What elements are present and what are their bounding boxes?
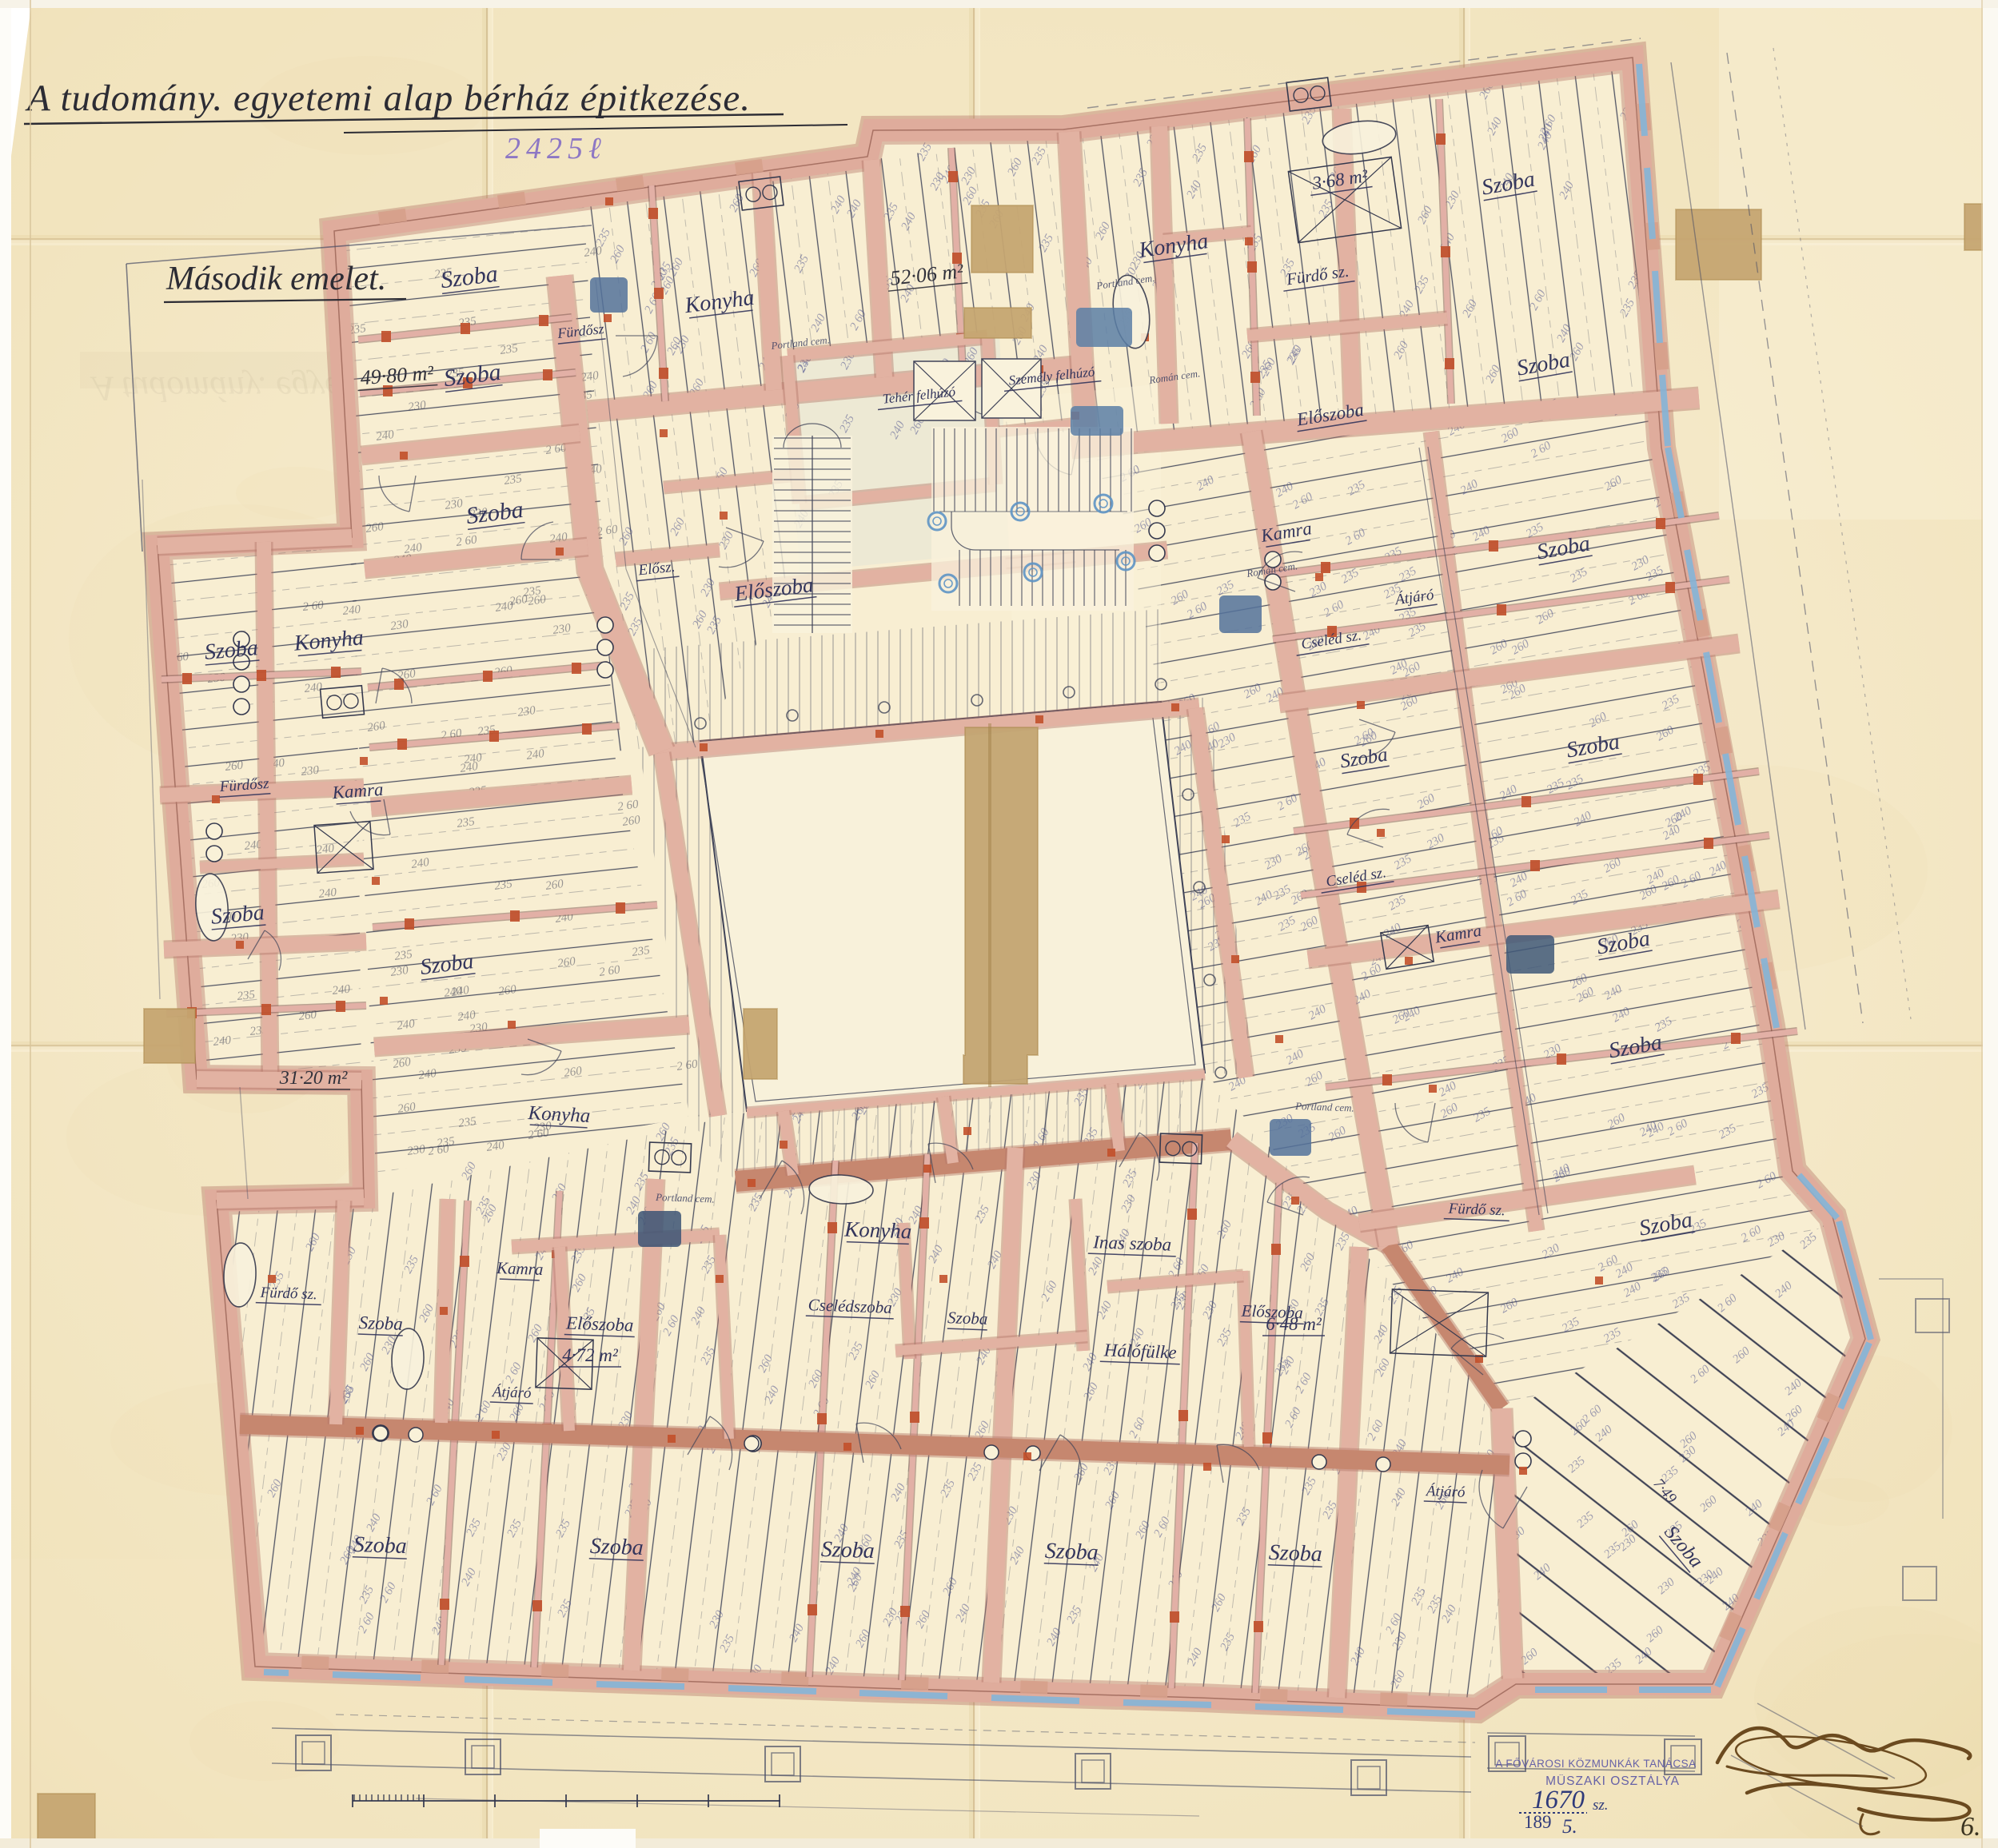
- svg-text:235: 235: [631, 944, 651, 959]
- svg-text:Szoba: Szoba: [820, 1537, 875, 1563]
- svg-text:Cselédszoba: Cselédszoba: [808, 1295, 892, 1317]
- svg-text:235: 235: [493, 878, 513, 893]
- svg-text:Szoba: Szoba: [1044, 1539, 1099, 1565]
- svg-text:235: 235: [436, 1135, 456, 1150]
- svg-text:240: 240: [525, 747, 545, 763]
- svg-text:2 60: 2 60: [302, 599, 325, 614]
- svg-text:Szoba: Szoba: [358, 1312, 403, 1334]
- svg-text:230: 230: [406, 1143, 426, 1158]
- svg-text:Fürdősz: Fürdősz: [218, 775, 269, 795]
- svg-text:189: 189: [1524, 1812, 1552, 1832]
- svg-text:240: 240: [396, 1018, 416, 1033]
- svg-text:Szoba: Szoba: [947, 1308, 988, 1328]
- svg-text:240: 240: [410, 856, 430, 871]
- svg-text:sz.: sz.: [1593, 1797, 1609, 1814]
- svg-text:260: 260: [397, 1101, 417, 1116]
- svg-text:260: 260: [366, 719, 386, 735]
- svg-text:240: 240: [459, 760, 479, 775]
- svg-text:240: 240: [417, 1067, 437, 1082]
- svg-text:240: 240: [332, 983, 352, 998]
- svg-text:230: 230: [407, 399, 427, 414]
- svg-text:260: 260: [544, 878, 564, 893]
- svg-text:Konyha: Konyha: [843, 1217, 912, 1244]
- svg-text:235: 235: [457, 1115, 477, 1130]
- svg-text:31·20 m²: 31·20 m²: [279, 1068, 348, 1089]
- svg-text:260: 260: [563, 1065, 583, 1080]
- svg-text:260: 260: [508, 593, 528, 608]
- svg-text:Fürdő sz.: Fürdő sz.: [1447, 1201, 1505, 1220]
- svg-text:260: 260: [497, 983, 517, 998]
- svg-text:Fürdő sz.: Fürdő sz.: [259, 1284, 317, 1304]
- svg-text:Kamra: Kamra: [331, 779, 384, 803]
- svg-text:Átjáró: Átjáró: [491, 1383, 532, 1402]
- svg-text:230: 230: [389, 618, 409, 633]
- svg-text:235: 235: [503, 472, 523, 488]
- svg-text:A FŐVÁROSI KÖZMUNKÁK TANÁCSA: A FŐVÁROSI KÖZMUNKÁK TANÁCSA: [1495, 1758, 1696, 1770]
- svg-text:4·72 m²: 4·72 m²: [562, 1345, 619, 1365]
- svg-text:Kamra: Kamra: [496, 1258, 544, 1279]
- svg-text:Szoba: Szoba: [1268, 1540, 1322, 1567]
- svg-text:260: 260: [621, 814, 641, 829]
- svg-text:235: 235: [456, 815, 476, 830]
- svg-text:230: 230: [516, 704, 536, 719]
- svg-text:240: 240: [375, 428, 395, 444]
- svg-text:230: 230: [552, 622, 572, 637]
- svg-text:240: 240: [342, 603, 362, 618]
- svg-text:Szoba: Szoba: [353, 1532, 407, 1559]
- svg-text:230: 230: [444, 497, 464, 512]
- svg-text:260: 260: [527, 593, 547, 608]
- svg-text:235: 235: [237, 989, 257, 1003]
- svg-text:240: 240: [485, 1139, 505, 1154]
- svg-text:260: 260: [556, 955, 576, 970]
- svg-text:235: 235: [393, 948, 413, 963]
- svg-text:Második emelet.: Második emelet.: [166, 261, 386, 297]
- svg-text:1670: 1670: [1532, 1786, 1585, 1814]
- svg-text:260: 260: [225, 759, 245, 774]
- svg-text:230: 230: [301, 764, 321, 779]
- svg-text:6·48 m²: 6·48 m²: [1266, 1314, 1322, 1334]
- svg-text:2425ℓ: 2425ℓ: [505, 132, 607, 165]
- svg-text:Hálófülke: Hálófülke: [1103, 1340, 1178, 1362]
- svg-text:Portland cem.: Portland cem.: [655, 1191, 715, 1205]
- svg-text:230: 230: [389, 964, 409, 979]
- svg-text:5.: 5.: [1562, 1816, 1577, 1838]
- svg-text:260: 260: [392, 1056, 412, 1071]
- svg-text:240: 240: [443, 985, 463, 1000]
- svg-text:235: 235: [499, 342, 519, 357]
- svg-text:Inas szoba: Inas szoba: [1092, 1232, 1172, 1254]
- svg-text:240: 240: [457, 1009, 477, 1024]
- svg-text:240: 240: [318, 886, 338, 901]
- svg-text:240: 240: [213, 1034, 233, 1049]
- svg-text:A tudomány. egyetemi alap bérh: A tudomány. egyetemi alap bérház épitkez…: [25, 78, 751, 119]
- svg-text:Átjáró: Átjáró: [1425, 1482, 1466, 1501]
- svg-text:Előszoba: Előszoba: [565, 1313, 634, 1336]
- svg-text:Portland cem.: Portland cem.: [1294, 1100, 1354, 1114]
- svg-text:Konyha: Konyha: [527, 1102, 591, 1127]
- svg-text:260: 260: [365, 520, 385, 536]
- svg-text:Szoba: Szoba: [589, 1534, 644, 1560]
